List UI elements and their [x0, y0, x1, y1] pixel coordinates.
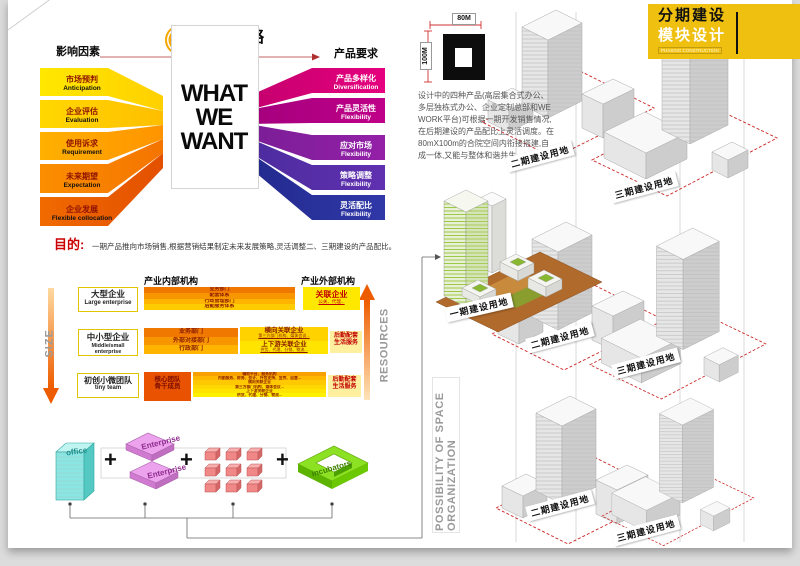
lateral-cell: 横向关联企业 第三方部门机构、媒体会议... [240, 327, 328, 341]
influence-header: 影响因素 [56, 46, 100, 59]
tiny-line-6: 供货、代理、分销、物流... [193, 393, 326, 397]
banner-title-2: 模块设计 [658, 27, 726, 44]
tiny-support-box: 后勤配套 生活服务 [328, 375, 361, 397]
what-we-want-text: WHAT WE WANT [171, 82, 257, 154]
size-axis-label: SIZE [44, 315, 57, 371]
resources-axis-label: RESOURCES [379, 305, 392, 385]
factor-evaluation: 企业评估Evaluation [48, 106, 116, 124]
plus-icon: + [104, 447, 117, 472]
banner-subtitle: PHASING CONSTRUCTION [658, 47, 722, 54]
plus-icon: + [180, 447, 193, 472]
presentation-board: WE 营销策略 影响因素 产品要求 WHAT WE WANT 市场预判Antic… [8, 0, 792, 548]
diagram-graphics-layer [8, 0, 792, 548]
dim-height-label: 100M [420, 42, 432, 70]
internal-org-header: 产业内部机构 [144, 276, 198, 286]
www-line: WANT [171, 130, 257, 154]
medium-support-box: 后勤配套 生活服务 [330, 331, 362, 353]
www-line: WHAT [171, 82, 257, 106]
plus-icon: + [276, 447, 289, 472]
purpose-text: 一期产品推向市场销售,根据营销结果制定未来发展策略,灵活调整二、三期建设的产品配… [92, 243, 396, 252]
www-line: WE [171, 106, 257, 130]
large-external-box: 关联企业 公关、代理... [303, 287, 360, 310]
req-strategy: 策略调整Flexibility [319, 170, 393, 188]
phasing-banner: 分期建设 模块设计 PHASING CONSTRUCTION [648, 4, 800, 59]
tiny-team-box: 初创小微团队 tiny team [77, 373, 139, 398]
large-enterprise-box: 大型企业 Large enterprise [78, 287, 138, 312]
banner-divider [736, 12, 738, 54]
req-ratio: 灵活配比Flexibility [319, 200, 393, 218]
possibility-caption: POSSIBILITY OF SPACE ORGANIZATION [432, 377, 460, 533]
purpose-label: 目的: [54, 238, 84, 253]
factor-development: 企业发展Flexible collocation [48, 204, 116, 222]
banner-title-1: 分期建设 [658, 7, 726, 24]
medium-enterprise-box: 中小型企业 Middle/small enterprise [78, 329, 138, 356]
medium-bar-1: 业务部门 [144, 328, 238, 337]
factor-anticipation: 市场预判Anticipation [48, 74, 116, 92]
medium-bar-2: 外部对接部门 [144, 337, 238, 346]
large-bar-4: 后勤服务体系 [144, 304, 295, 310]
factor-requirement: 使用诉求Requirement [48, 138, 116, 156]
medium-bar-3: 行政部门 [144, 345, 238, 354]
req-flexibility1: 产品灵活性Flexibility [319, 103, 393, 121]
external-org-header: 产业外部机构 [301, 276, 355, 286]
tiny-core-block: 核心团队 骨干成员 [144, 372, 191, 401]
factor-expectation: 未来期望Expectation [48, 171, 116, 189]
updown-cell: 上下游关联企业 供货、代理、分销、物流... [240, 341, 328, 354]
req-market: 应对市场Flexibility [319, 140, 393, 158]
courtyard-hole [455, 48, 472, 67]
dim-width-label: 80M [452, 13, 476, 25]
req-diversification: 产品多样化Diversification [319, 73, 393, 91]
product-header: 产品要求 [334, 48, 378, 61]
